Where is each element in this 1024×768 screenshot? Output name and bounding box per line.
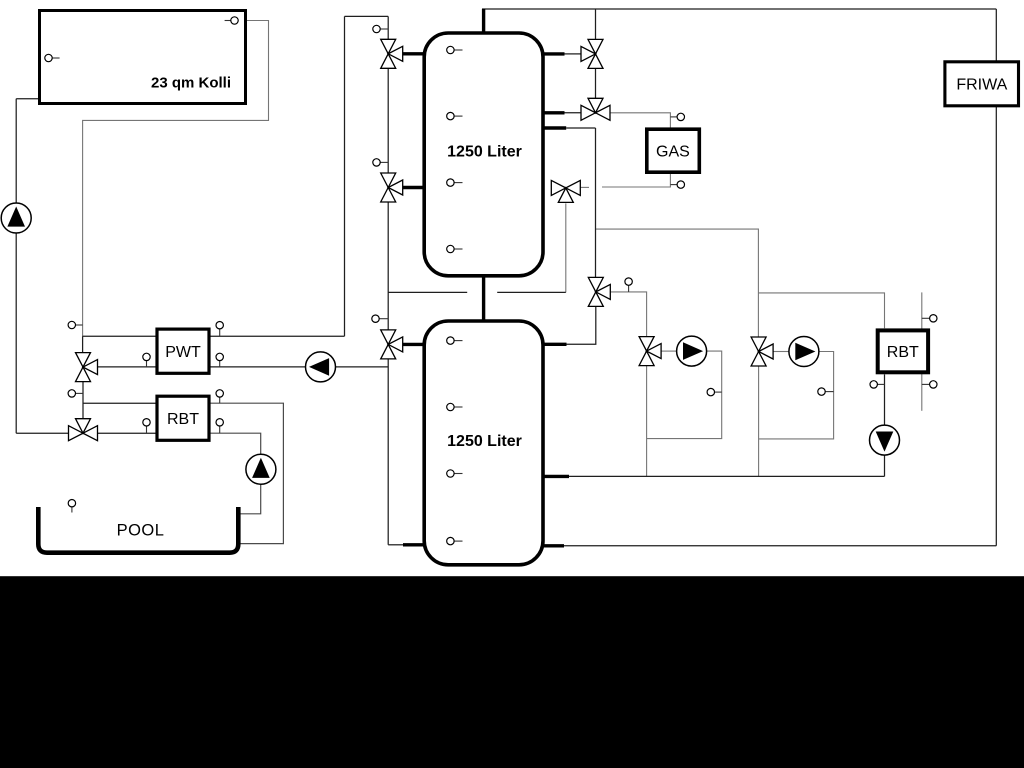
svg-text:1250 Liter: 1250 Liter	[447, 143, 522, 160]
svg-text:1250 Liter: 1250 Liter	[447, 433, 522, 450]
svg-text:POOL: POOL	[117, 521, 165, 539]
svg-text:RBT: RBT	[167, 411, 199, 428]
svg-text:23 qm Kolli: 23 qm Kolli	[151, 75, 231, 92]
svg-text:GAS: GAS	[656, 143, 690, 160]
svg-text:RBT: RBT	[887, 344, 919, 361]
svg-text:FRIWA: FRIWA	[956, 77, 1007, 94]
svg-text:PWT: PWT	[165, 344, 201, 361]
